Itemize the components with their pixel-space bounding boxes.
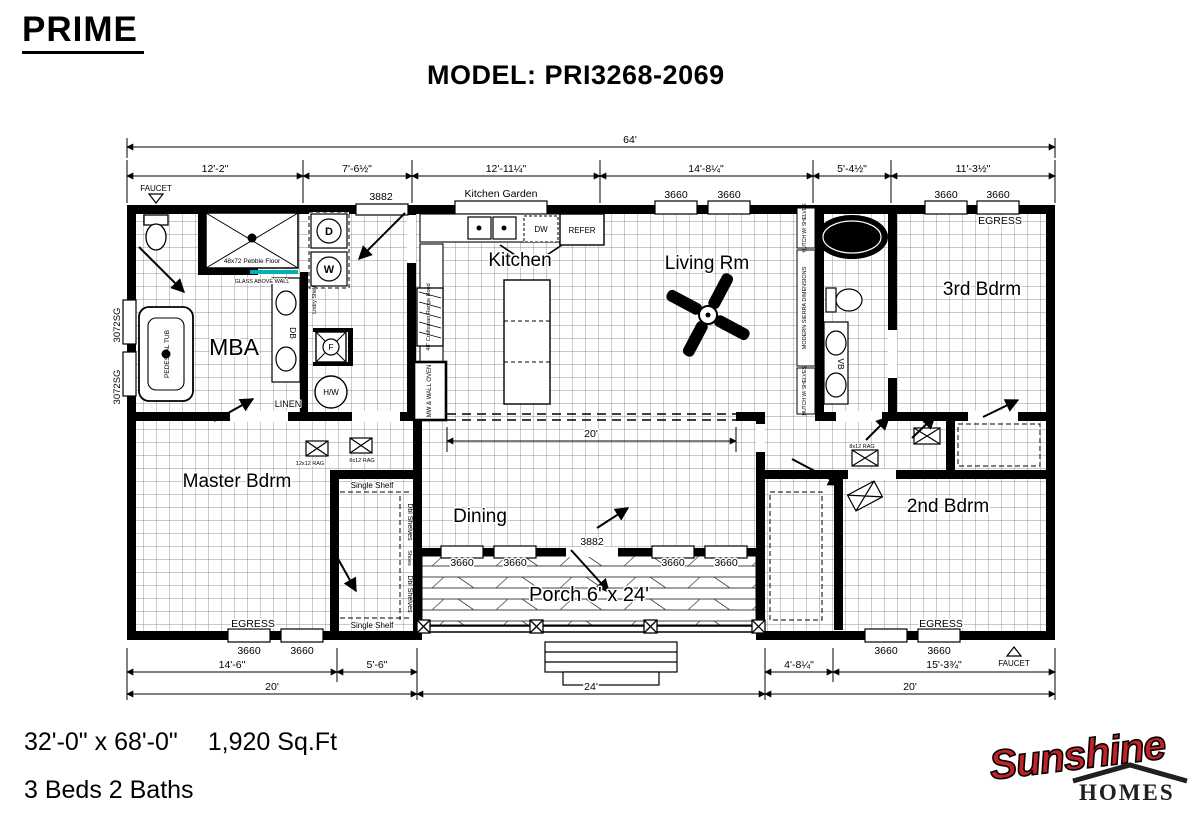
- faucet-label: FAUCET: [998, 659, 1030, 668]
- shower-label: 48x72 Pebble Floor: [224, 258, 281, 265]
- room-label-master: Master Bdrm: [183, 471, 292, 492]
- dim-seg: 7'-6½": [342, 163, 372, 175]
- floor-plan-drawing: 64' 12'-2" 7'-6½" 12'-11¼" 14'-8¼" 5'-4½…: [0, 0, 1200, 818]
- tub2-tag: #2BA: [841, 237, 863, 247]
- room-label-living: Living Rm: [665, 253, 749, 274]
- dbl-shelves-label: Dbl Shelves: [406, 575, 413, 613]
- plan-sqft: 1,920 Sq.Ft: [208, 728, 337, 756]
- dim-seg: 5'-4½": [837, 163, 867, 175]
- dim-seg: 4'-8¼": [784, 659, 814, 671]
- hutch-label: HUTCH W/ SHELVES: [802, 203, 808, 253]
- dim-seg: 12'-2": [202, 163, 229, 175]
- window-label: 3660: [874, 645, 898, 657]
- dim-total: 20': [265, 681, 279, 693]
- lndry-shelf-label: Lndry Shelf: [312, 286, 318, 314]
- vb-label: VB: [836, 358, 846, 370]
- dim-total: 20': [903, 681, 917, 693]
- dim-seg: 12'-11¼": [486, 163, 527, 175]
- wall-oven-label: MW & WALL OVEN: [427, 365, 433, 418]
- rag-label: 12x12 RAG: [296, 461, 324, 467]
- hw-label: H/W: [323, 388, 339, 397]
- window-label: 3660: [503, 557, 527, 569]
- washer-dryer: [309, 212, 349, 288]
- window-label: 3660: [450, 557, 474, 569]
- dim-overall: 64': [623, 134, 637, 146]
- egress-label: EGRESS: [978, 215, 1022, 227]
- faucet-icon: [149, 194, 163, 203]
- washer-label: W: [324, 264, 335, 276]
- room-label-mba: MBA: [209, 334, 260, 360]
- room-label-dining: Dining: [453, 506, 507, 527]
- sunshine-homes-logo: Sunshine HOMES: [985, 730, 1197, 816]
- dim-seg: 14'-8¼": [688, 163, 724, 175]
- range-hood-label: 48" Craftsman Range Hood: [426, 283, 432, 350]
- pedestal-tub-label: PEDESTAL TUB: [164, 330, 171, 378]
- single-shelf-label: Single Shelf: [351, 481, 394, 490]
- f-label: F: [328, 342, 333, 352]
- db-label: DB: [288, 327, 298, 339]
- window-label: 3660: [934, 189, 958, 201]
- window-label: 3072SG: [112, 308, 123, 343]
- single-shelf-label: Single Shelf: [351, 621, 394, 630]
- dim-seg: 11'-3½": [956, 163, 991, 175]
- window-label: 3660: [664, 189, 688, 201]
- room-label-porch: Porch 6' x 24': [529, 584, 649, 606]
- dim-seg: 5'-6": [367, 659, 388, 671]
- window-label: 3660: [714, 557, 738, 569]
- shoes-label: Shoes: [406, 550, 412, 566]
- dryer-label: D: [325, 226, 333, 238]
- dim-seg: 14'-6": [219, 659, 246, 671]
- room-label-third: 3rd Bdrm: [943, 279, 1021, 300]
- window-label: Kitchen Garden: [465, 188, 538, 200]
- beds-baths-line: 3 Beds 2 Baths: [24, 776, 194, 805]
- rag-label: 8x12 RAG: [349, 458, 374, 464]
- refer-label: REFER: [568, 226, 595, 235]
- porch-steps: [545, 642, 677, 685]
- window-label: 3660: [986, 189, 1010, 201]
- hutch-label: HUTCH W/ SHELVES: [802, 366, 808, 416]
- dim-seg: 15'-3¾": [926, 659, 962, 671]
- faucet-label: FAUCET: [140, 184, 172, 193]
- dim-hall: 20': [584, 428, 598, 440]
- ent-center-label: MODERN SIERRA DIMENSIONS: [802, 266, 808, 349]
- glass-label: GLASS ABOVE WALL: [235, 279, 290, 285]
- logo-sub-text: HOMES: [1079, 780, 1175, 806]
- window-label: 3660: [661, 557, 685, 569]
- floor-plan-sheet: PRIME MODEL: PRI3268-2069: [0, 0, 1200, 818]
- egress-label: EGRESS: [231, 618, 275, 630]
- door-label: 3882: [369, 191, 393, 203]
- room-label-second: 2nd Bdrm: [907, 496, 989, 517]
- linen-label: LINEN: [275, 399, 302, 409]
- toilet-bowl: [146, 224, 166, 250]
- dbl-shelves-label: Dbl Shelves: [406, 503, 413, 541]
- dw-label: DW: [534, 225, 548, 234]
- kitchen-island: [504, 280, 550, 404]
- toilet2-tank: [826, 288, 836, 312]
- toilet2-bowl: [836, 289, 862, 311]
- window-label: 3660: [290, 645, 314, 657]
- window-label: 3072SG: [112, 370, 123, 405]
- tub2-model: 56043: [839, 226, 864, 236]
- dim-total: 24': [584, 681, 598, 693]
- window-label: 3660: [927, 645, 951, 657]
- window-label: 3660: [237, 645, 261, 657]
- room-label-kitchen: Kitchen: [488, 250, 551, 271]
- egress-label: EGRESS: [919, 618, 963, 630]
- faucet-icon: [1007, 647, 1021, 656]
- rag-label: 8x12 RAG: [849, 444, 874, 450]
- door-label: 3882: [580, 536, 604, 548]
- plan-size: 32'-0" x 68'-0": [24, 728, 178, 756]
- window-label: 3660: [717, 189, 741, 201]
- plan-size-line: 32'-0" x 68'-0"1,920 Sq.Ft: [24, 728, 337, 757]
